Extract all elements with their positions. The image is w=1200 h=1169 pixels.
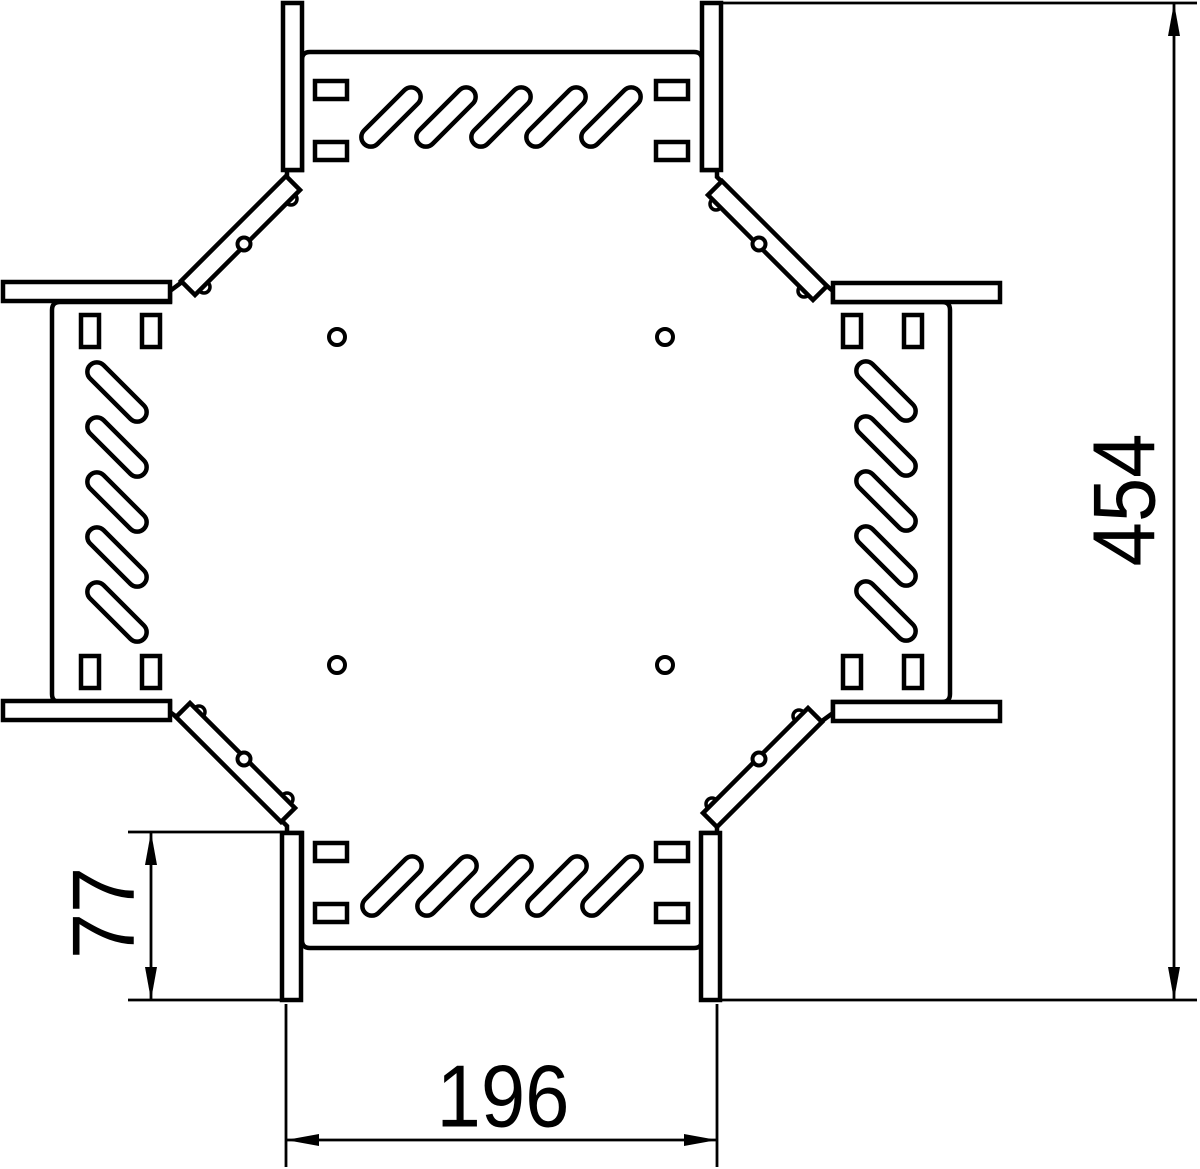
dim-77-label: 77 [54, 867, 153, 959]
arrowhead-down [1168, 967, 1180, 1000]
dim-454-label: 454 [1075, 434, 1174, 567]
tray-outline [52, 52, 950, 948]
technical-drawing-page: 454 77 196 [0, 0, 1200, 1169]
arrowhead-left [286, 1134, 319, 1146]
dimension-duct-width: 196 [286, 1004, 717, 1167]
arrowhead-down [145, 967, 157, 1000]
arrowhead-right [684, 1134, 717, 1146]
arrowhead-up [1168, 3, 1180, 36]
dim-196-label: 196 [437, 1047, 570, 1146]
arrowhead-up [145, 832, 157, 865]
drawing-canvas: 454 77 196 [0, 0, 1200, 1169]
dimension-flange-length: 77 [54, 832, 289, 1000]
